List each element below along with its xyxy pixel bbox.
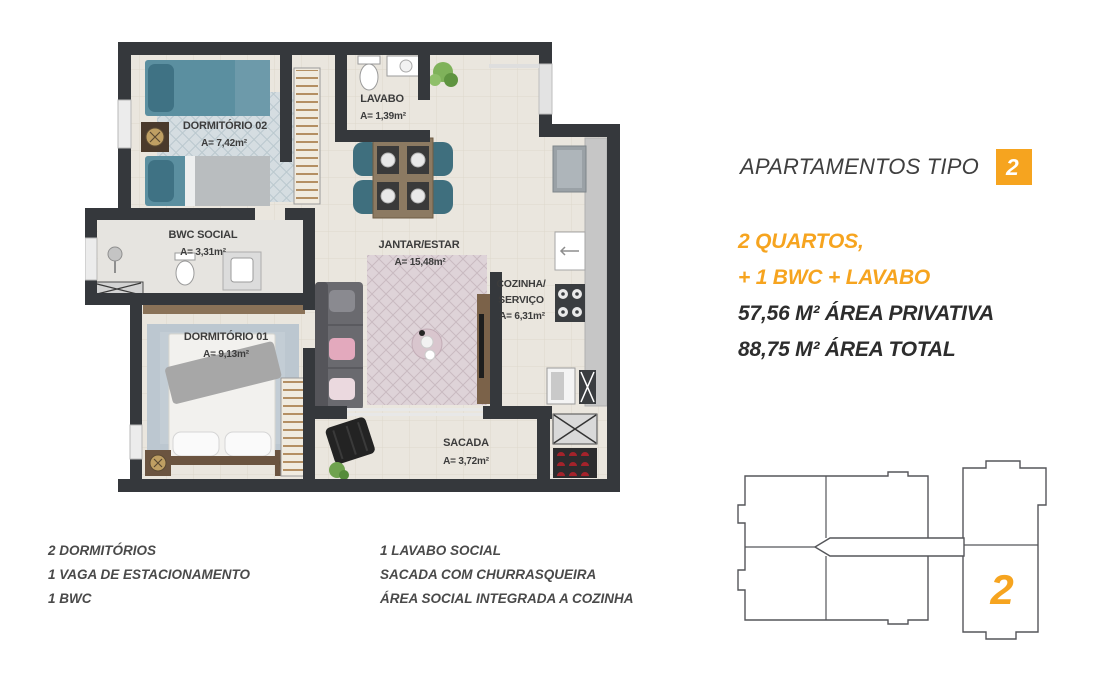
tv [479, 314, 484, 378]
svg-text:A= 3,31m²: A= 3,31m² [180, 247, 227, 258]
pillow [225, 432, 271, 456]
plate [381, 189, 395, 203]
basin [400, 60, 412, 72]
closet-wardrobe [294, 68, 320, 204]
page: DORMITÓRIO 02 A= 7,42m² LAVABO A= 1,39m²… [0, 0, 1100, 686]
door-leaf [489, 64, 539, 68]
pillow [329, 338, 355, 360]
svg-text:A= 3,72m²: A= 3,72m² [443, 456, 490, 467]
keyplan-corridor-arrow [815, 538, 964, 556]
window [118, 100, 131, 148]
features-list-right: 1 LAVABO SOCIAL SACADA COM CHURRASQUEIRA… [380, 539, 634, 611]
spec-area-total: 88,75 M² ÁREA TOTAL [738, 332, 994, 368]
svg-text:A= 9,13m²: A= 9,13m² [203, 349, 250, 360]
toilet [176, 261, 194, 285]
feature-sacada: SACADA COM CHURRASQUEIRA [380, 563, 634, 587]
feature-area-social: ÁREA SOCIAL INTEGRADA A COZINHA [380, 587, 634, 611]
feature-lavabo: 1 LAVABO SOCIAL [380, 539, 634, 563]
keyplan-unit-number: 2 [989, 566, 1013, 613]
label-lavabo: LAVABO [360, 93, 404, 105]
pillow [329, 290, 355, 312]
feature-vaga: 1 VAGA DE ESTACIONAMENTO [48, 563, 250, 587]
shower-head [108, 247, 122, 261]
unit-number-badge: 2 [996, 149, 1032, 185]
window [130, 425, 142, 459]
headboard-shelf [143, 305, 305, 314]
glass-door [347, 413, 483, 416]
pillow [148, 160, 174, 202]
basin [231, 258, 253, 282]
plate [411, 153, 425, 167]
label-dorm02: DORMITÓRIO 02 [183, 119, 267, 132]
pillow [329, 378, 355, 400]
keyplan-drawing: 2 [728, 452, 1068, 652]
toilet-tank [358, 56, 380, 64]
keyplan: 2 [728, 452, 1068, 652]
features-list-left: 2 DORMITÓRIOS 1 VAGA DE ESTACIONAMENTO 1… [48, 539, 250, 611]
spec-list: 2 QUARTOS, + 1 BWC + LAVABO 57,56 M² ÁRE… [738, 224, 994, 368]
label-sacada: SACADA [443, 437, 489, 449]
svg-text:SERVIÇO: SERVIÇO [498, 294, 544, 306]
svg-text:A= 6,31m²: A= 6,31m² [499, 311, 546, 322]
feature-dormitorios: 2 DORMITÓRIOS [48, 539, 250, 563]
plate [411, 189, 425, 203]
label-dorm01: DORMITÓRIO 01 [184, 330, 268, 343]
label-jantar: JANTAR/ESTAR [379, 239, 460, 251]
entry-door [539, 64, 552, 114]
blanket [185, 156, 270, 206]
label-bwc: BWC SOCIAL [169, 229, 238, 241]
page-title: APARTAMENTOS TIPO [740, 154, 979, 180]
window [85, 238, 97, 280]
toilet [360, 64, 378, 90]
glass-door [347, 408, 483, 411]
stove [555, 284, 585, 322]
churrasqueira [553, 448, 597, 478]
floor-plan-drawing: DORMITÓRIO 02 A= 7,42m² LAVABO A= 1,39m²… [85, 42, 625, 492]
pillow [148, 64, 174, 112]
feature-bwc: 1 BWC [48, 587, 250, 611]
spec-area-privativa: 57,56 M² ÁREA PRIVATIVA [738, 296, 994, 332]
counter [585, 138, 607, 406]
plate [381, 153, 395, 167]
svg-text:A= 1,39m²: A= 1,39m² [360, 111, 407, 122]
svg-text:A= 15,48m²: A= 15,48m² [394, 257, 446, 268]
pillow [173, 432, 219, 456]
spec-quartos: 2 QUARTOS, [738, 224, 994, 260]
spec-bwc-lavabo: + 1 BWC + LAVABO [738, 260, 994, 296]
svg-text:A= 7,42m²: A= 7,42m² [201, 138, 248, 149]
apartment-type-header: APARTAMENTOS TIPO 2 [740, 149, 1032, 185]
label-cozinha: COZINHA/ [496, 278, 545, 290]
floor-plan: DORMITÓRIO 02 A= 7,42m² LAVABO A= 1,39m²… [85, 42, 625, 492]
